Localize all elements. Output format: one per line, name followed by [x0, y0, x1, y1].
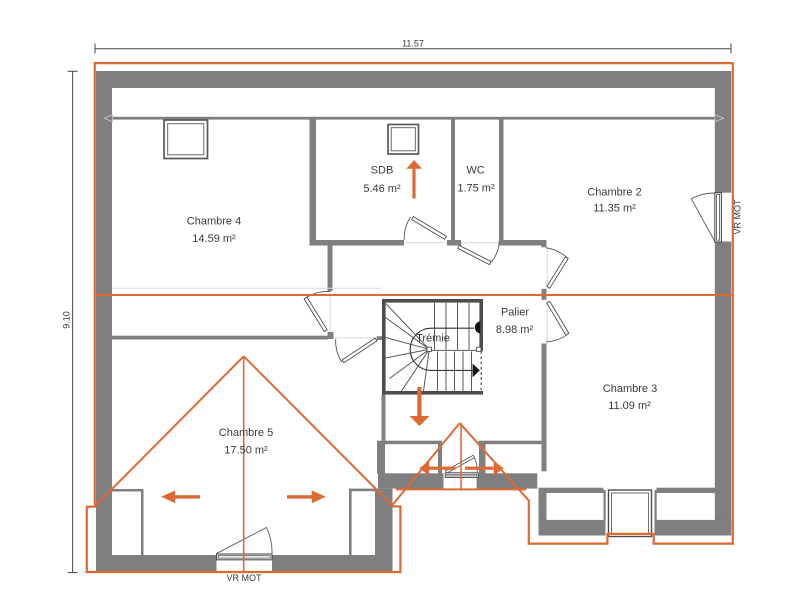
svg-text:Chambre 4: Chambre 4: [187, 216, 241, 228]
svg-text:5.46 m²: 5.46 m²: [363, 183, 401, 195]
svg-text:SDB: SDB: [371, 165, 394, 177]
svg-text:Trémie: Trémie: [416, 333, 450, 345]
svg-text:8.98 m²: 8.98 m²: [496, 324, 534, 336]
svg-text:9.10: 9.10: [62, 311, 72, 329]
svg-text:11.57: 11.57: [402, 39, 424, 49]
svg-text:Chambre 5: Chambre 5: [219, 427, 273, 439]
svg-text:VR MOT: VR MOT: [227, 573, 263, 583]
svg-text:WC: WC: [466, 165, 484, 177]
svg-text:Chambre 3: Chambre 3: [603, 383, 657, 395]
svg-text:14.59 m²: 14.59 m²: [192, 233, 236, 245]
svg-text:1.75 m²: 1.75 m²: [457, 183, 495, 195]
svg-text:17.50 m²: 17.50 m²: [224, 445, 268, 457]
svg-text:Palier: Palier: [501, 307, 529, 319]
svg-text:11.09 m²: 11.09 m²: [608, 400, 651, 412]
svg-text:VR MOT: VR MOT: [733, 199, 743, 235]
svg-text:Chambre 2: Chambre 2: [587, 187, 641, 199]
svg-text:11.35 m²: 11.35 m²: [593, 203, 636, 215]
